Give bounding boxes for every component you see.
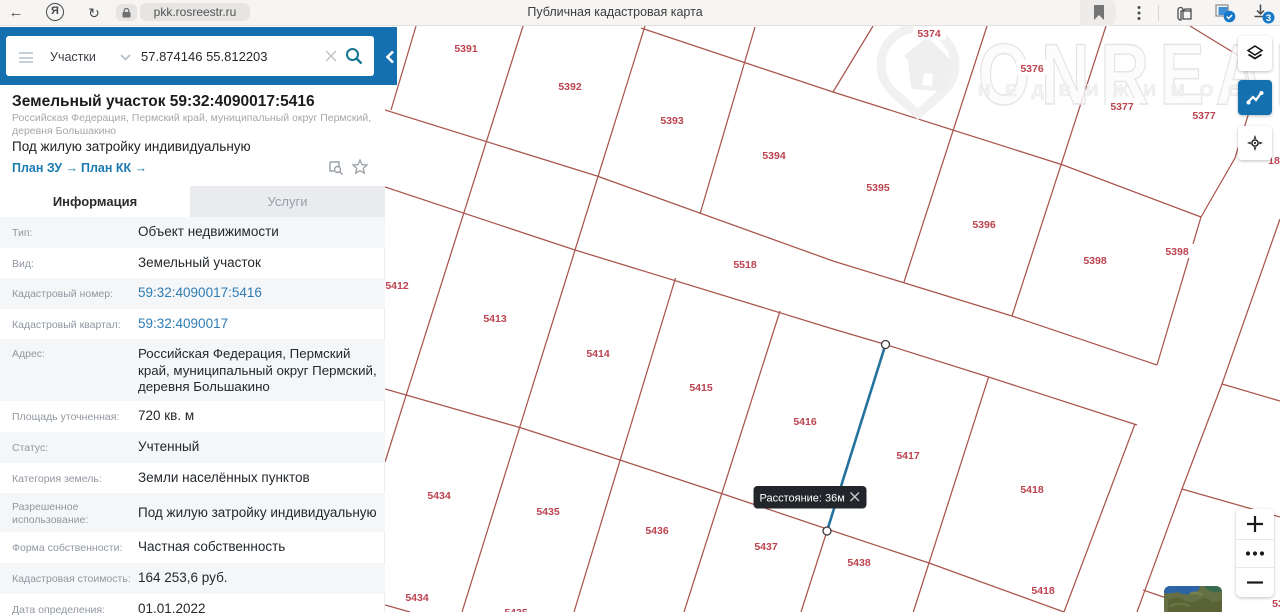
svg-text:5415: 5415 [689, 382, 713, 394]
svg-text:5434: 5434 [427, 490, 451, 502]
svg-text:5376: 5376 [1020, 63, 1044, 75]
svg-text:5438: 5438 [847, 557, 871, 569]
svg-text:5417: 5417 [896, 450, 920, 462]
svg-text:5436: 5436 [645, 525, 669, 537]
svg-text:5418: 5418 [1020, 484, 1044, 496]
svg-text:Расстояние: 36м: Расстояние: 36м [760, 493, 845, 505]
svg-text:5414: 5414 [586, 348, 610, 360]
svg-text:5398: 5398 [1165, 246, 1189, 258]
svg-text:5416: 5416 [793, 416, 817, 428]
svg-text:5518: 5518 [733, 259, 757, 271]
svg-text:5391: 5391 [454, 43, 478, 55]
svg-text:5437: 5437 [754, 541, 778, 553]
svg-text:5434: 5434 [405, 592, 429, 604]
svg-text:53: 53 [1272, 598, 1280, 610]
svg-text:5394: 5394 [762, 150, 786, 162]
svg-text:5392: 5392 [558, 81, 582, 93]
svg-text:5413: 5413 [483, 313, 507, 325]
svg-text:5398: 5398 [1083, 255, 1107, 267]
svg-text:5395: 5395 [866, 182, 890, 194]
svg-text:5418: 5418 [1031, 585, 1055, 597]
svg-text:5377: 5377 [1110, 101, 1134, 113]
svg-text:5412: 5412 [385, 280, 409, 292]
svg-text:3: 3 [1266, 13, 1271, 24]
svg-text:5374: 5374 [917, 28, 941, 40]
svg-text:5435: 5435 [504, 607, 528, 612]
svg-text:НЕДВИЖИМОСТЬ: НЕДВИЖИМОСТЬ [978, 81, 1280, 100]
svg-text:5393: 5393 [660, 115, 684, 127]
svg-text:5377: 5377 [1192, 110, 1216, 122]
svg-text:5396: 5396 [972, 219, 996, 231]
svg-text:5435: 5435 [536, 506, 560, 518]
